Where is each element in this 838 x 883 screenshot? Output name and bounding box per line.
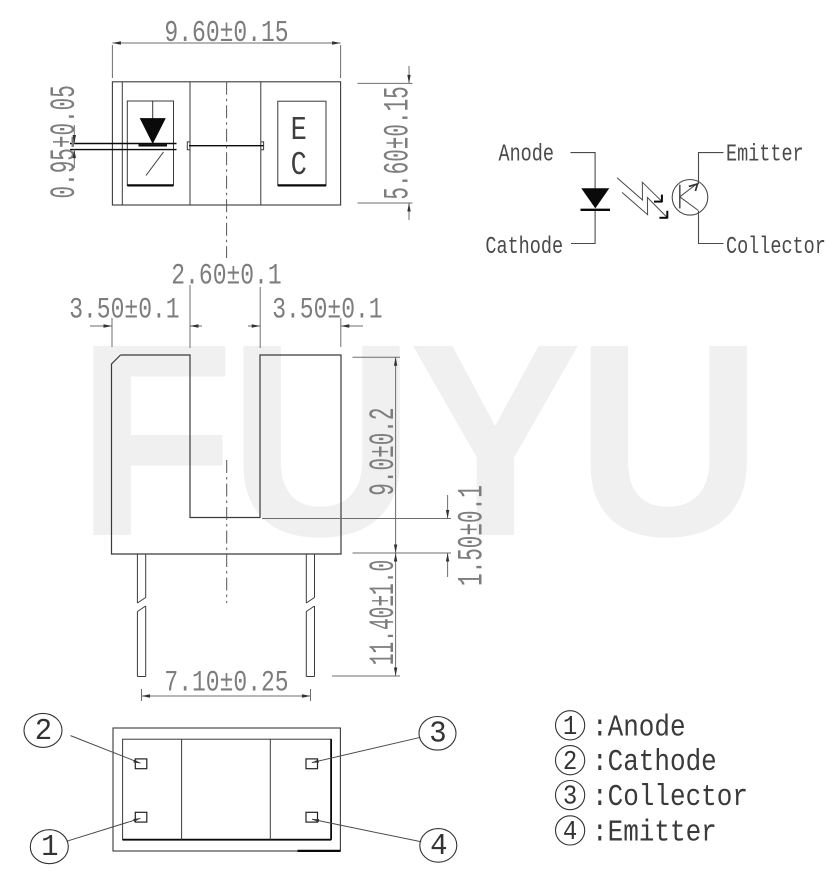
svg-text:3: 3 xyxy=(563,782,577,812)
svg-text:2.60±0.1: 2.60±0.1 xyxy=(171,259,281,292)
svg-text:FUYU: FUYU xyxy=(76,286,756,593)
svg-text:Collector: Collector xyxy=(726,234,826,261)
svg-text:3: 3 xyxy=(429,716,446,751)
svg-text:2: 2 xyxy=(35,713,52,748)
svg-text:9.60±0.15: 9.60±0.15 xyxy=(164,16,288,51)
svg-text:7.10±0.25: 7.10±0.25 xyxy=(164,666,288,699)
svg-text:Anode: Anode xyxy=(499,141,554,168)
svg-text::Cathode: :Cathode xyxy=(592,745,717,779)
svg-text:1: 1 xyxy=(41,829,58,864)
svg-text:Cathode: Cathode xyxy=(485,234,563,261)
svg-text:3.50±0.1: 3.50±0.1 xyxy=(272,293,382,326)
svg-text:5.60±0.15: 5.60±0.15 xyxy=(378,86,418,199)
svg-text:4: 4 xyxy=(563,817,577,847)
svg-text:4: 4 xyxy=(430,828,447,863)
svg-text:0.95±0.05: 0.95±0.05 xyxy=(45,85,85,198)
svg-text::Emitter: :Emitter xyxy=(592,816,717,850)
svg-text:C: C xyxy=(291,148,307,185)
svg-text:E: E xyxy=(291,113,307,150)
svg-text:1.50±0.1: 1.50±0.1 xyxy=(452,485,492,586)
svg-text:3.50±0.1: 3.50±0.1 xyxy=(69,293,179,326)
svg-text:11.40±1.0: 11.40±1.0 xyxy=(365,560,405,665)
svg-text::Anode: :Anode xyxy=(592,711,686,745)
svg-text::Collector: :Collector xyxy=(592,780,748,814)
svg-text:2: 2 xyxy=(563,747,577,777)
svg-text:1: 1 xyxy=(563,712,577,742)
svg-text:Emitter: Emitter xyxy=(726,141,804,168)
svg-text:9.0±0.2: 9.0±0.2 xyxy=(364,408,404,496)
